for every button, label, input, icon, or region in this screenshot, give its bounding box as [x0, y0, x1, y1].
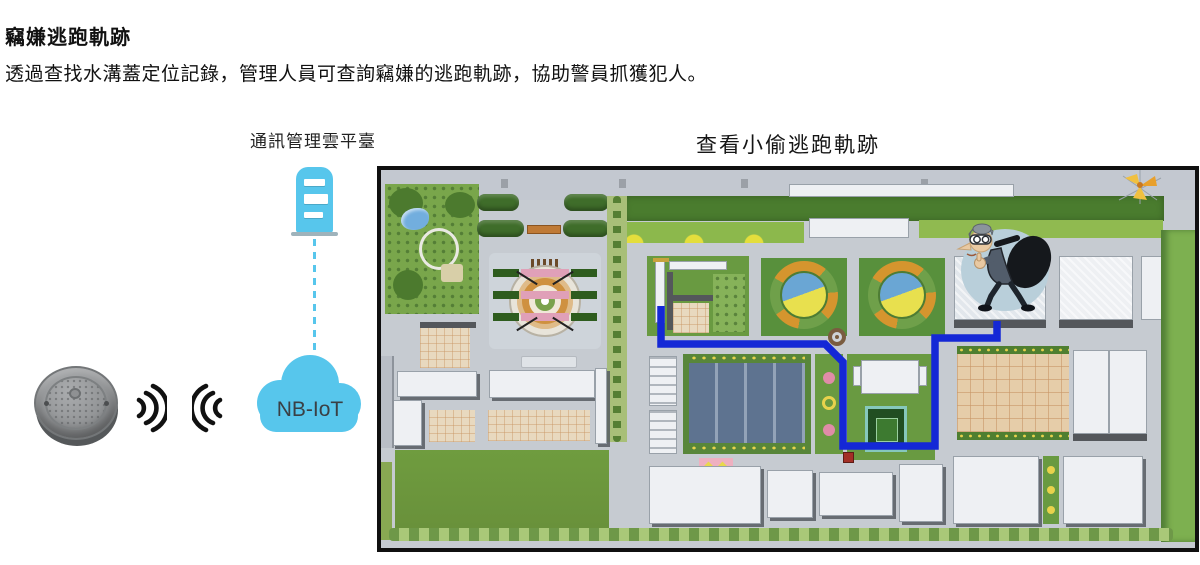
map-building [669, 261, 727, 270]
big-lawn [395, 450, 609, 540]
page-subtitle: 透過查找水溝蓋定位記錄，管理人員可查詢竊嫌的逃跑軌跡，協助警員抓獲犯人。 [5, 59, 707, 86]
cloud-platform-label: 通訊管理雲平臺 [250, 127, 376, 152]
dark-court [865, 406, 907, 452]
garden-block [859, 258, 945, 336]
road-text-mark [741, 179, 748, 188]
flag-bed [571, 291, 597, 299]
thief-cartoon-icon [947, 222, 1063, 314]
cloud-label: NB-IoT [277, 398, 344, 421]
hedge-row [957, 432, 1069, 440]
flower-border [689, 354, 805, 362]
server-slot [304, 179, 325, 186]
hedge-row [957, 346, 1069, 354]
slide: 竊嫌逃跑軌跡 透過查找水溝蓋定位記錄，管理人員可查詢竊嫌的逃跑軌跡，協助警員抓獲… [0, 0, 1200, 565]
flower [1047, 506, 1055, 514]
radio-waves-left-icon [192, 382, 226, 434]
court-inner [876, 418, 898, 442]
lawn-strip [624, 222, 804, 243]
map-building [899, 464, 943, 522]
map-building [1073, 350, 1147, 434]
flag-bed [571, 313, 597, 321]
map-building [1059, 256, 1133, 320]
edge-green-strip [1161, 230, 1195, 542]
red-kiosk [843, 452, 854, 463]
flower-strip [815, 354, 843, 454]
entrance-gate [527, 225, 561, 234]
road-text-mark [619, 179, 626, 188]
walkway [420, 322, 476, 328]
manhole-texture [45, 376, 107, 430]
flag-bed [493, 313, 519, 321]
flag-bed [493, 269, 519, 277]
flower [823, 372, 835, 384]
map-label-mark [653, 258, 669, 262]
map-building [655, 261, 665, 323]
map-park [385, 184, 479, 314]
building-shadow [1059, 320, 1133, 328]
windmill-icon [1117, 170, 1163, 204]
park-grove [445, 192, 475, 218]
server-slot [304, 212, 323, 218]
map-building [1141, 256, 1163, 320]
map-building [809, 218, 909, 238]
garden-block [761, 258, 847, 336]
building-wing [853, 366, 861, 386]
hedge-row [564, 194, 609, 211]
park-plaza [441, 264, 463, 282]
central-plaza [489, 253, 601, 349]
building-shadow [1073, 434, 1147, 441]
map-building [767, 470, 813, 518]
garden-patch [713, 274, 745, 332]
courtyard [673, 303, 709, 333]
server-slot [304, 194, 328, 204]
temple-block [847, 354, 935, 460]
map-building [489, 370, 595, 398]
campus-map [377, 166, 1199, 552]
building-divider [1108, 351, 1110, 435]
map-building [392, 400, 422, 446]
map-building [861, 360, 919, 394]
roundabout-center [835, 335, 839, 339]
tree-row [613, 196, 621, 442]
flower [1047, 466, 1055, 474]
garden-pond [878, 271, 926, 319]
manhole-center-plug [69, 388, 81, 399]
flower [822, 396, 836, 410]
flower-border [689, 444, 805, 452]
manhole-bolt [44, 401, 49, 406]
campus-block [647, 256, 749, 336]
page-title: 竊嫌逃跑軌跡 [5, 21, 131, 50]
tree-lined-road [607, 196, 627, 442]
map-building [649, 410, 677, 454]
flag-bed [493, 291, 519, 299]
server-base [291, 232, 338, 236]
hedge-band [389, 528, 1173, 541]
road-text-mark [501, 179, 508, 188]
map-building [789, 184, 1014, 197]
cloud-server-icon [296, 167, 333, 233]
map-building [397, 371, 477, 397]
building-wing [919, 366, 927, 386]
courtyard [488, 410, 590, 441]
parking-rows [689, 363, 805, 443]
manhole-top [34, 366, 118, 440]
flower [823, 424, 835, 436]
flower-strip [1043, 456, 1059, 524]
map-building [819, 472, 893, 516]
tan-plaza [957, 354, 1069, 432]
hedge-row [477, 194, 519, 211]
dashed-uplink-line [313, 239, 316, 351]
roundabout [828, 328, 846, 346]
hedge-row [563, 220, 609, 237]
edge-building [381, 356, 394, 448]
flag-bed [571, 269, 597, 277]
nbiot-cloud-icon: NB-IoT [246, 346, 372, 444]
park-grove [393, 270, 423, 300]
map-building [595, 368, 607, 444]
courtyard [420, 328, 470, 368]
map-building [1063, 456, 1143, 524]
map-title: 查看小偷逃跑軌跡 [378, 129, 1198, 159]
map-building [649, 356, 677, 406]
manhole-cover-icon [34, 366, 120, 448]
garden-pond [780, 271, 828, 319]
courtyard [429, 410, 475, 442]
radio-waves-right-icon [133, 382, 167, 434]
plaza-core [541, 297, 549, 305]
flower [1047, 486, 1055, 494]
building-shadow [954, 320, 1046, 328]
hedge-row [477, 220, 524, 237]
map-building [953, 456, 1039, 524]
map-building [649, 466, 761, 524]
plaza-stairs [521, 356, 577, 368]
parking-block [683, 354, 811, 454]
manhole-bolt [104, 401, 109, 406]
